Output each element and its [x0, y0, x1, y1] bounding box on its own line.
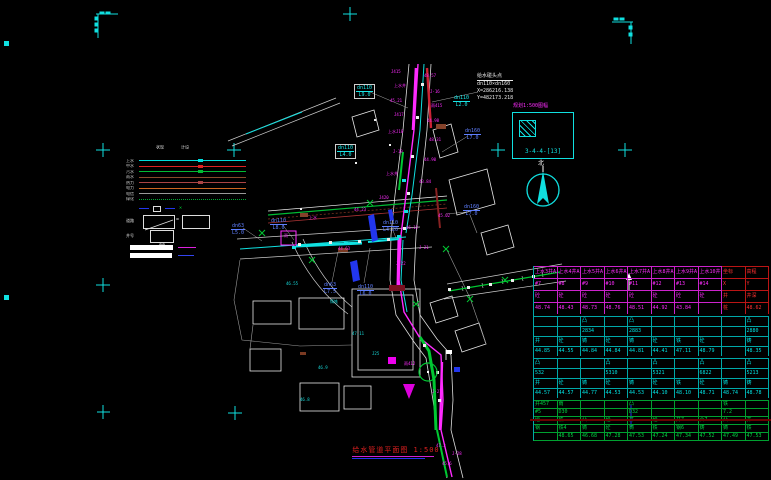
- table-cell: 48.10: [675, 388, 699, 398]
- table-cell: [699, 302, 723, 314]
- table-cell: 48.71: [699, 388, 723, 398]
- well-annotation: J417: [394, 113, 404, 117]
- table-cell: [699, 408, 723, 416]
- table-cell: 砼: [605, 336, 629, 346]
- table-cell: 高程: [746, 266, 770, 278]
- well-annotation: 45.02: [438, 214, 450, 218]
- table-cell: 井: [722, 290, 746, 302]
- pipe-size-label: dn63L7.5: [323, 282, 337, 295]
- table-cell: 砼: [558, 336, 582, 346]
- table-cell: 44.55: [558, 346, 582, 356]
- table-cell: 铁: [652, 424, 676, 432]
- table-cell: 凸: [628, 400, 652, 408]
- well-annotation: 45.6: [442, 462, 452, 466]
- detail-sheet-number: 3-4-4-[13]: [513, 148, 573, 155]
- table-cell: 铸: [746, 378, 770, 388]
- table-cell: 上水6井A: [605, 266, 629, 278]
- table-cell: [605, 326, 629, 336]
- table-cell: 48.62: [746, 302, 770, 314]
- legend-line-sample: [139, 166, 246, 167]
- well-annotation: 上水J18: [388, 130, 403, 134]
- table-cell: 47.49: [722, 432, 746, 440]
- table-cell: 铸: [699, 424, 723, 432]
- table-cell: #14: [699, 278, 723, 290]
- table-cell: 桩: [722, 302, 746, 314]
- note-line-1: 给水碰头点: [477, 73, 513, 81]
- table-cell: 铸: [722, 378, 746, 388]
- elevation-annotation: 46.9: [318, 366, 328, 370]
- table-cell: [605, 316, 629, 326]
- table-row: 井砼铸砼铸砼铁砼铸铸: [534, 378, 769, 388]
- table-cell: 砼: [534, 290, 558, 302]
- table-row: 44.5744.5744.7744.5344.5344.1048.1048.71…: [534, 388, 769, 398]
- table-cell: 雨: [558, 400, 582, 408]
- table-cell: [558, 316, 582, 326]
- map-symbols: [281, 124, 460, 399]
- table-cell: D32: [628, 408, 652, 416]
- table-cell: 上水8井A: [652, 266, 676, 278]
- table-cell: 532: [534, 368, 558, 378]
- table-cell: 44.85: [534, 346, 558, 356]
- table-cell: 48.78: [746, 388, 770, 398]
- legend-header-design: 设计: [181, 145, 189, 149]
- table-row: 5325310532168225213: [534, 368, 769, 378]
- elevation-annotation: 47.11: [352, 332, 364, 336]
- legend-magenta-line: [178, 247, 196, 248]
- legend-road-label: 道路: [126, 218, 134, 223]
- well-annotation: J-27: [432, 390, 442, 394]
- table-cell: [722, 316, 746, 326]
- table-cell: [699, 326, 723, 336]
- table-cell: 铁: [722, 400, 746, 408]
- legend-row: 雨水: [126, 175, 246, 180]
- table-cell: [605, 408, 629, 416]
- well-annotation: J-16: [430, 90, 440, 94]
- table-cell: 砼: [628, 290, 652, 302]
- well-annotation: 上水井: [386, 172, 398, 176]
- table-cell: 砼: [605, 378, 629, 388]
- table-cell: 井深: [746, 290, 770, 302]
- table-cell: 47.53: [746, 432, 770, 440]
- elevation-annotation: J25: [372, 352, 379, 356]
- edge-square-mark: [4, 41, 9, 46]
- table-cell: [581, 408, 605, 416]
- pipe-size-label: dn160L7.0: [464, 128, 481, 141]
- table-cell: [534, 432, 558, 440]
- table-cell: 砼: [558, 378, 582, 388]
- table-cell: 上水9井A: [675, 266, 699, 278]
- title-underline-blue: [352, 458, 425, 459]
- tie-in-note: 给水碰头点 dn110×dn160 X=286216.138 Y=482173.…: [477, 73, 513, 102]
- table-cell: 凸: [605, 358, 629, 368]
- table-cell: 44.41: [652, 346, 676, 356]
- legend-line-sample: [139, 188, 246, 189]
- north-label: 北: [538, 158, 544, 167]
- well-annotation: 44.63: [338, 247, 350, 251]
- table-cell: 凸: [652, 358, 676, 368]
- table-cell: 砼: [581, 290, 605, 302]
- legend-row: 中水: [126, 164, 246, 169]
- table-cell: [652, 408, 676, 416]
- table-cell: Y: [746, 278, 770, 290]
- table-cell: 44.53: [605, 388, 629, 398]
- table-cell: 铸: [628, 378, 652, 388]
- table-cell: 47.28: [605, 432, 629, 440]
- table-cell: 2834: [581, 326, 605, 336]
- table-cell: [581, 358, 605, 368]
- table-cell: 凸: [534, 358, 558, 368]
- table-cell: 凸: [746, 316, 770, 326]
- detail-reference-box: 3-4-4-[13]: [512, 112, 574, 159]
- well-annotation: J-19: [393, 150, 403, 154]
- pipe-size-label: dn110L4.20: [382, 220, 399, 233]
- table-cell: 48.35: [746, 346, 770, 356]
- table-cell: 砼: [699, 336, 723, 346]
- table-cell: [699, 316, 723, 326]
- legend-blue-line: [178, 255, 194, 256]
- well-annotation: 48.57: [424, 74, 436, 78]
- well-annotation: J415: [391, 70, 401, 74]
- well-annotation: 44.98: [427, 119, 439, 123]
- table-cell: [558, 358, 582, 368]
- legend-bar-2: [130, 253, 172, 258]
- table-cell: [675, 326, 699, 336]
- table-cell: 5321: [652, 368, 676, 378]
- table-cell: 凸: [628, 316, 652, 326]
- well-annotation: J420: [379, 196, 389, 200]
- table-cell: 48.74: [534, 302, 558, 314]
- table-cell: 5310: [605, 368, 629, 378]
- pipe-size-label: dn63L5.0: [231, 223, 245, 236]
- legend-line-sample: [139, 193, 246, 194]
- table-cell: 6822: [699, 368, 723, 378]
- north-arrow: [527, 166, 559, 206]
- pipe-size-label: dn160L7.0: [463, 204, 480, 217]
- table-cell: 44.53: [628, 388, 652, 398]
- well-annotation: 上水井: [394, 84, 406, 88]
- legend-row-label: 雨水: [126, 175, 139, 179]
- table-cell: [534, 326, 558, 336]
- note-line-2: dn110×dn160: [477, 81, 513, 88]
- table-cell: [746, 400, 770, 408]
- table-cell: 44.77: [581, 388, 605, 398]
- table-cell: 44.84: [605, 346, 629, 356]
- legend-line-sample: [139, 171, 246, 172]
- note-line-4: Y=482173.218: [477, 95, 513, 102]
- table-cell: 砼: [675, 290, 699, 302]
- well-annotation: 44.23: [354, 208, 366, 212]
- table-cell: 2880: [746, 326, 770, 336]
- table-cell: 铁: [675, 336, 699, 346]
- legend-equals: =: [176, 218, 179, 223]
- table-cell: 2883: [628, 326, 652, 336]
- table-cell: [675, 408, 699, 416]
- well-annotation: 48.31: [429, 138, 441, 142]
- table-row: 283428832880: [534, 326, 769, 336]
- well-annotation: 45.21: [390, 99, 402, 103]
- title-underline-magenta: [352, 456, 434, 457]
- table-cell: 井: [534, 336, 558, 346]
- table-cell: 铸: [581, 336, 605, 346]
- legend-road-box-hatched: [143, 215, 175, 229]
- table-row: 凸凸凸: [534, 316, 769, 326]
- pipe-size-label: dn110L2.0: [453, 95, 470, 108]
- table-cell: 48.43: [558, 302, 582, 314]
- table-cell: [722, 358, 746, 368]
- pipe-size-label: dn110L8.0: [270, 218, 287, 231]
- table-cell: 铁: [675, 378, 699, 388]
- table-cell: [534, 316, 558, 326]
- table-cell: 48.76: [605, 302, 629, 314]
- frame-corner-marks: [95, 12, 633, 44]
- legend-header-existing: 现状: [156, 145, 164, 149]
- table-cell: 砼: [699, 378, 723, 388]
- table-cell: 铸: [628, 336, 652, 346]
- building-outlines: [250, 110, 514, 411]
- table-cell: 上水7井A: [628, 266, 652, 278]
- cad-viewport[interactable]: 现状 设计 上水中水污水雨水热力电力电信绿化 ✕ 道路 = 井号 AA 给水碰头…: [0, 0, 771, 480]
- table-cell: 砼: [652, 378, 676, 388]
- table-cell: 砼: [652, 290, 676, 302]
- legend-line-sample: [139, 177, 246, 178]
- well-annotation: 雨415: [431, 104, 442, 108]
- table-cell: [699, 400, 723, 408]
- table-cell: [605, 400, 629, 408]
- well-annotation: J-21: [419, 246, 429, 250]
- table-cell: [652, 326, 676, 336]
- table-cell: #9: [581, 278, 605, 290]
- table-cell: [675, 400, 699, 408]
- tree-center-dot: [427, 371, 429, 373]
- table-cell: [675, 368, 699, 378]
- table-cell: [581, 368, 605, 378]
- table-cell: [652, 400, 676, 408]
- table-row: 上水3井A上水4井A上水5井A上水6井A上水7井A上水8井A上水9井A上水10井…: [534, 266, 769, 278]
- legend-row: 上水: [126, 158, 246, 163]
- well-annotation: 44.90: [424, 158, 436, 162]
- legend-row-label: 绿化: [126, 197, 139, 201]
- table-cell: 凸: [746, 358, 770, 368]
- table-cell: 48.74: [722, 388, 746, 398]
- legend-row-label: 热力: [126, 181, 139, 185]
- legend-row: 绿化: [126, 197, 246, 202]
- table-cell: #13: [675, 278, 699, 290]
- table-cell: 46.68: [581, 432, 605, 440]
- table-row: #7#8#9#10#11#12#13#14XY: [534, 278, 769, 290]
- table-cell: 43.84: [675, 302, 699, 314]
- table-cell: 铸: [581, 424, 605, 432]
- well-annotation: 43.84: [419, 180, 431, 184]
- legend-row: 电力: [126, 186, 246, 191]
- table-cell: [628, 368, 652, 378]
- table-cell: D30: [558, 408, 582, 416]
- table-cell: [722, 326, 746, 336]
- well-annotation: 上水: [309, 216, 317, 220]
- table-cell: 坐标: [722, 266, 746, 278]
- well-data-table: 上水3井A上水4井A上水5井A上水6井A上水7井A上水8井A上水9井A上水10井…: [533, 266, 769, 441]
- table-cell: #7: [534, 278, 558, 290]
- table-cell: X: [722, 278, 746, 290]
- pipe-size-label: dn110L4.0: [335, 144, 356, 159]
- table-cell: 砼: [605, 424, 629, 432]
- table-baseline: [530, 419, 771, 421]
- table-row: 井砼铸砼铸砼铁砼铸: [534, 336, 769, 346]
- table-cell: 砼: [652, 336, 676, 346]
- table-cell: 钢: [534, 424, 558, 432]
- table-cell: 47.11: [675, 346, 699, 356]
- table-cell: 上水10井: [699, 266, 723, 278]
- table-row: 井457雨凸铁: [534, 400, 769, 408]
- table-cell: 凸: [699, 358, 723, 368]
- table-cell: #10: [605, 278, 629, 290]
- table-row: 凸凸凸凸凸: [534, 358, 769, 368]
- pipe-size-label: dn110L6.0: [357, 284, 374, 297]
- well-annotation: J-22: [396, 262, 406, 266]
- legend-bar-1: [130, 245, 173, 250]
- legend-row-label: 电信: [126, 192, 139, 196]
- legend-road-box-plain: [182, 215, 210, 229]
- pipe-size-label: dn110L9.0: [354, 84, 375, 99]
- legend-row-label: 电力: [126, 186, 139, 190]
- table-cell: 上水4井A: [558, 266, 582, 278]
- legend-well-row-label: 井号: [126, 233, 134, 238]
- legend-row: 热力: [126, 180, 246, 185]
- table-row: 48.7448.4348.7348.7648.5144.9243.84桩48.6…: [534, 302, 769, 314]
- table-cell: 48.73: [581, 302, 605, 314]
- well-annotation: 雨412: [404, 362, 415, 366]
- table-cell: 44.92: [652, 302, 676, 314]
- table-cell: [558, 326, 582, 336]
- table-cell: 井: [534, 378, 558, 388]
- parcel-boundaries: [234, 215, 486, 349]
- legend-line-sample: [139, 199, 246, 200]
- note-line-3: X=286216.138: [477, 88, 513, 95]
- table-cell: #8: [558, 278, 582, 290]
- table-cell: [722, 346, 746, 356]
- table-row: 钢铁4铸砼铸铁钢6铸铸铁: [534, 424, 769, 432]
- table-cell: [722, 368, 746, 378]
- table-cell: 钢6: [675, 424, 699, 432]
- table-cell: #11: [628, 278, 652, 290]
- table-cell: 5213: [746, 368, 770, 378]
- elevation-annotation: 46.55: [286, 282, 298, 286]
- table-cell: [581, 400, 605, 408]
- legend-row-label: 中水: [126, 164, 139, 168]
- table-cell: 47.53: [628, 432, 652, 440]
- table-cell: 井457: [534, 400, 558, 408]
- table-cell: 上水3井A: [534, 266, 558, 278]
- table-row: 砼砼砼砼砼砼砼砼井井深: [534, 290, 769, 302]
- table-cell: 44.84: [581, 346, 605, 356]
- legend-row-label: 上水: [126, 159, 139, 163]
- legend-line-sample: [139, 160, 246, 161]
- table-cell: 47.24: [652, 432, 676, 440]
- drawing-title: 给水管道平面图 1:500: [338, 445, 454, 455]
- table-cell: 7.2: [722, 408, 746, 416]
- table-cell: 砼: [699, 290, 723, 302]
- legend-symbols-row: ✕: [126, 206, 246, 211]
- table-cell: 铸: [581, 378, 605, 388]
- table-row: 44.8544.5544.8444.8444.8144.4147.1148.79…: [534, 346, 769, 356]
- legend-row: 电信: [126, 191, 246, 196]
- table-cell: 47.34: [675, 432, 699, 440]
- table-cell: 砼: [558, 290, 582, 302]
- table-cell: 47.52: [699, 432, 723, 440]
- hatch-swatch: [519, 120, 536, 137]
- elevation-annotation: 铸铁: [330, 300, 338, 304]
- table-cell: 铁: [746, 424, 770, 432]
- table-cell: [558, 368, 582, 378]
- table-cell: 44.10: [652, 388, 676, 398]
- well-annotation: 46.12: [406, 226, 418, 230]
- table-cell: 铁4: [558, 424, 582, 432]
- table-cell: 44.81: [628, 346, 652, 356]
- table-cell: 铸: [628, 424, 652, 432]
- table-cell: 48.65: [558, 432, 582, 440]
- table-cell: 上水5井A: [581, 266, 605, 278]
- table-row: 48.6546.6847.2847.5347.2447.3447.5247.49…: [534, 432, 769, 440]
- table-cell: [746, 408, 770, 416]
- table-cell: #5: [534, 408, 558, 416]
- detail-box-title: 规划1:500图幅: [513, 104, 548, 109]
- table-row: #5D30D327.2: [534, 408, 769, 416]
- legend-row: 污水: [126, 169, 246, 174]
- table-cell: 44.57: [558, 388, 582, 398]
- legend-row-label: 污水: [126, 170, 139, 174]
- edge-square-mark: [4, 295, 9, 300]
- table-cell: 铸: [722, 424, 746, 432]
- table-cell: #12: [652, 278, 676, 290]
- table-cell: [675, 358, 699, 368]
- table-cell: 48.79: [699, 346, 723, 356]
- table-cell: [675, 316, 699, 326]
- legend-line-sample: [139, 182, 246, 183]
- table-cell: [652, 316, 676, 326]
- table-cell: 凸: [581, 316, 605, 326]
- well-annotation: 雨: [284, 234, 288, 238]
- table-cell: [722, 336, 746, 346]
- table-cell: 48.51: [628, 302, 652, 314]
- table-cell: 44.57: [534, 388, 558, 398]
- table-cell: 铸: [746, 336, 770, 346]
- legend-well-box: AA: [150, 230, 174, 243]
- table-cell: 砼: [605, 290, 629, 302]
- table-cell: [628, 358, 652, 368]
- elevation-annotation: 46.8: [300, 398, 310, 402]
